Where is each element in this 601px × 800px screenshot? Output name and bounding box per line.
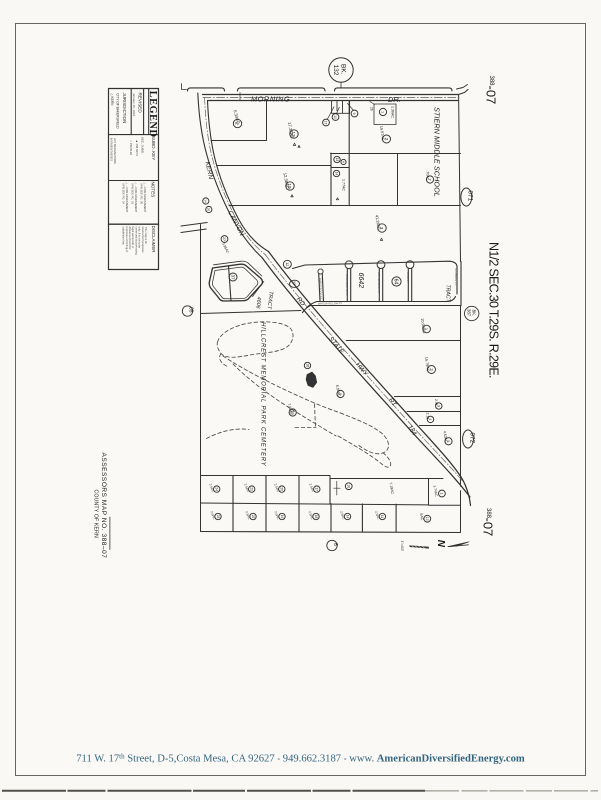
svg-text:711 W. 17th Street, D-5,Costa: 711 W. 17th Street, D-5,Costa Mesa, CA 9… (76, 752, 525, 764)
svg-text:A: A (341, 161, 345, 163)
svg-text:▲ PM 4074: ▲ PM 4074 (135, 140, 139, 156)
svg-text:9: 9 (352, 113, 356, 115)
svg-text:IN PARENTHESES: IN PARENTHESES (110, 138, 114, 161)
svg-text:8: 8 (332, 543, 338, 546)
svg-text:SUBD. KEY: SUBD. KEY (151, 136, 156, 161)
svg-text:1.36AC.: 1.36AC. (391, 106, 395, 119)
svg-text:27: 27 (222, 237, 226, 241)
svg-text:TRACT: TRACT (444, 285, 450, 303)
svg-text:387: 387 (466, 309, 471, 317)
svg-text:1.77AC: 1.77AC (342, 179, 346, 191)
svg-text:2.16: 2.16 (426, 413, 430, 420)
svg-text:1: 1 (440, 493, 444, 495)
svg-text:N: N (435, 540, 446, 548)
svg-text:1: 1 (381, 111, 385, 113)
svg-text:13: 13 (335, 158, 339, 162)
svg-text:subdivision law.: subdivision law. (122, 227, 126, 246)
svg-text:DR.: DR. (388, 95, 401, 104)
svg-text:○ PM 8122: ○ PM 8122 (129, 140, 133, 155)
svg-text:-07: -07 (484, 86, 499, 105)
svg-text:37: 37 (230, 274, 235, 280)
svg-text:12: 12 (285, 262, 289, 266)
svg-text:08: 08 (187, 307, 193, 313)
svg-text:10: 10 (425, 517, 429, 521)
svg-text:BIG MEADOW CT: BIG MEADOW CT (377, 272, 381, 294)
svg-text:JURISDICTION: JURISDICTION (122, 93, 127, 124)
svg-text:BURNT ROCK DR: BURNT ROCK DR (319, 278, 323, 300)
svg-text:-07: -07 (481, 518, 496, 537)
svg-text:N1/2 SEC.30 T.29S. R.29E.: N1/2 SEC.30 T.29S. R.29E. (487, 242, 501, 378)
svg-text:132: 132 (332, 65, 339, 76)
svg-text:10: 10 (333, 115, 337, 119)
svg-text:072: 072 (468, 433, 475, 444)
svg-text:LEGEND: LEGEND (147, 91, 158, 138)
svg-text:28: 28 (370, 107, 374, 111)
svg-text:REVISED: REVISED (138, 93, 143, 114)
svg-text:ORLA BRETTE CT: ORLA BRETTE CT (345, 274, 349, 296)
svg-text:26: 26 (305, 364, 309, 368)
svg-text:N1: N1 (292, 281, 296, 285)
svg-text:071: 071 (467, 191, 474, 202)
svg-text:2.91: 2.91 (434, 399, 438, 406)
svg-text:17: 17 (324, 121, 328, 125)
svg-text:ASSESSORS MAP NO. 388–07: ASSESSORS MAP NO. 388–07 (100, 453, 107, 559)
svg-text:20: 20 (207, 208, 211, 212)
svg-text:COUNTY OF KERN: COUNTY OF KERN (93, 490, 99, 539)
svg-text:16: 16 (346, 484, 350, 488)
svg-text:1”=400’: 1”=400’ (400, 541, 404, 552)
svg-text:APN SEE PG. 33: APN SEE PG. 33 (131, 183, 135, 204)
svg-text:14: 14 (204, 199, 208, 203)
svg-text:CITY OF BAKERSFIELD: CITY OF BAKERSFIELD (115, 93, 119, 129)
svg-text:.70AC.: .70AC. (426, 171, 430, 181)
svg-text:64: 64 (392, 279, 398, 285)
svg-text:DISCLAIMER: DISCLAIMER (151, 226, 156, 253)
svg-text:MORNING: MORNING (251, 95, 290, 104)
svg-text:6642: 6642 (357, 273, 364, 289)
svg-text:January 15, 1916: January 15, 1916 (132, 93, 136, 117)
svg-text:APN SEE PG. 34: APN SEE PG. 34 (122, 183, 126, 204)
svg-text:NOTES: NOTES (150, 182, 155, 198)
svg-text:STIERN MIDDLE SCHOOL: STIERN MIDDLE SCHOOL (433, 107, 442, 197)
svg-text:LOT DESIGNATIONS: LOT DESIGNATIONS (113, 138, 117, 164)
svg-text:SCOBURG CT: SCOBURG CT (454, 268, 458, 286)
svg-text:BK.: BK. (340, 64, 347, 75)
svg-text:△ KERN: △ KERN (110, 93, 114, 106)
svg-text:SEC. SUBD.: SEC. SUBD. (141, 137, 145, 154)
svg-text:APN SEE PG. 30: APN SEE PG. 30 (140, 183, 144, 204)
svg-text:WATERHOLLOW CT: WATERHOLLOW CT (318, 301, 343, 305)
svg-text:KYLE CT: KYLE CT (406, 272, 410, 283)
svg-text:14: 14 (334, 172, 338, 176)
svg-text:HILLCREST MEMORIAL PARK CEM: HILLCREST MEMORIAL PARK CEMETERY (260, 322, 266, 467)
